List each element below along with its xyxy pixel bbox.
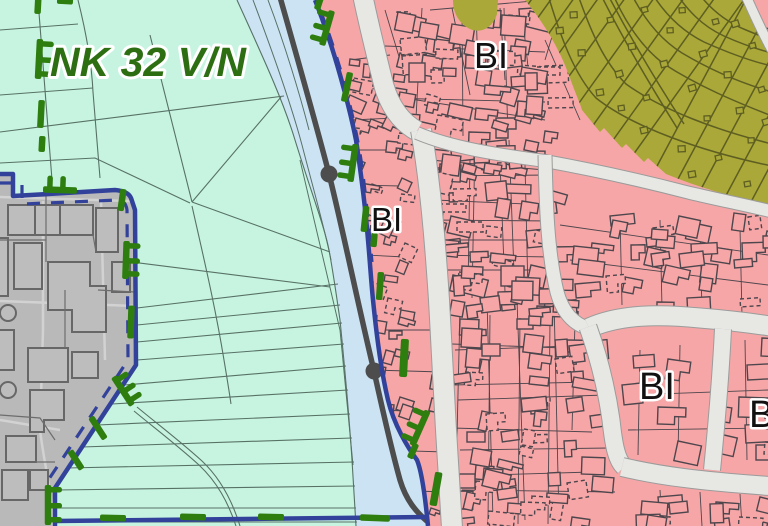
svg-text:BI: BI <box>749 394 768 436</box>
svg-text:BI: BI <box>371 201 402 238</box>
svg-text:BI: BI <box>474 35 508 76</box>
svg-text:BI: BI <box>639 366 675 408</box>
svg-text:NK 32 V/N: NK 32 V/N <box>50 39 247 85</box>
